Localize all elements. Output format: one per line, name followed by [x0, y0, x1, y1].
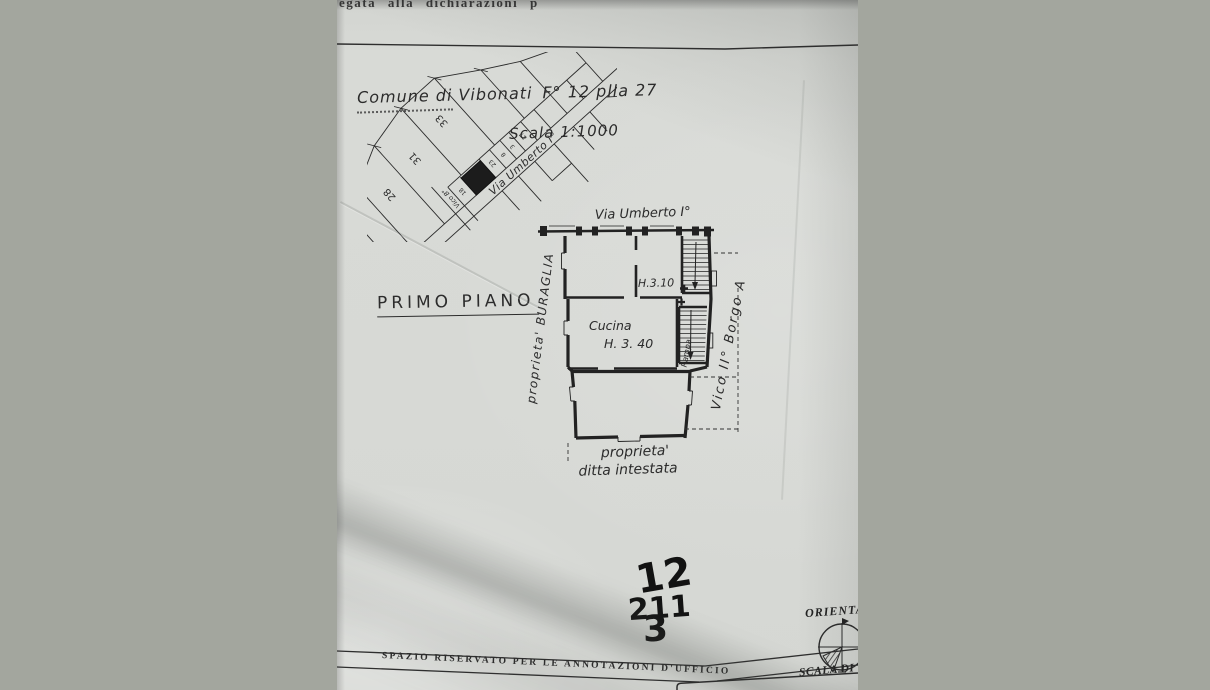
room-height-label: H.3.10 [638, 276, 674, 290]
cross-marks [678, 285, 688, 306]
kitchen-height-label: H. 3. 40 [604, 336, 653, 351]
parcel-number-small: 17 [518, 130, 528, 140]
parcel-number-small: 3 [509, 143, 517, 151]
parcel-number: 28 [382, 186, 399, 203]
street-wall [538, 226, 714, 237]
parcel-number-small: 23 [487, 158, 497, 168]
parcel-number-small: 8 [500, 151, 508, 159]
paper-right-edge-shade [798, 0, 858, 690]
kitchen-label: Cucina [589, 318, 632, 333]
document-photo: egata alla dichiarazioni p Comune di Vib… [337, 0, 858, 690]
parcel-number: 33 [434, 112, 451, 129]
paper-crease [781, 80, 804, 500]
top-rule-line [337, 0, 858, 60]
parcel-number-small: 18 [458, 186, 468, 196]
paper-left-edge-shade [337, 0, 345, 690]
floor-level-label: PRIMO PIANO [377, 291, 539, 318]
bottom-boundary-label-line1: proprieta' [590, 442, 681, 461]
parcel-number: 31 [407, 150, 424, 167]
photo-viewer-background: egata alla dichiarazioni p Comune di Vib… [0, 0, 1210, 690]
plan-street-label: Via Umberto I° [595, 205, 691, 223]
bottom-boundary-label-line2: ditta intestata [563, 460, 693, 481]
